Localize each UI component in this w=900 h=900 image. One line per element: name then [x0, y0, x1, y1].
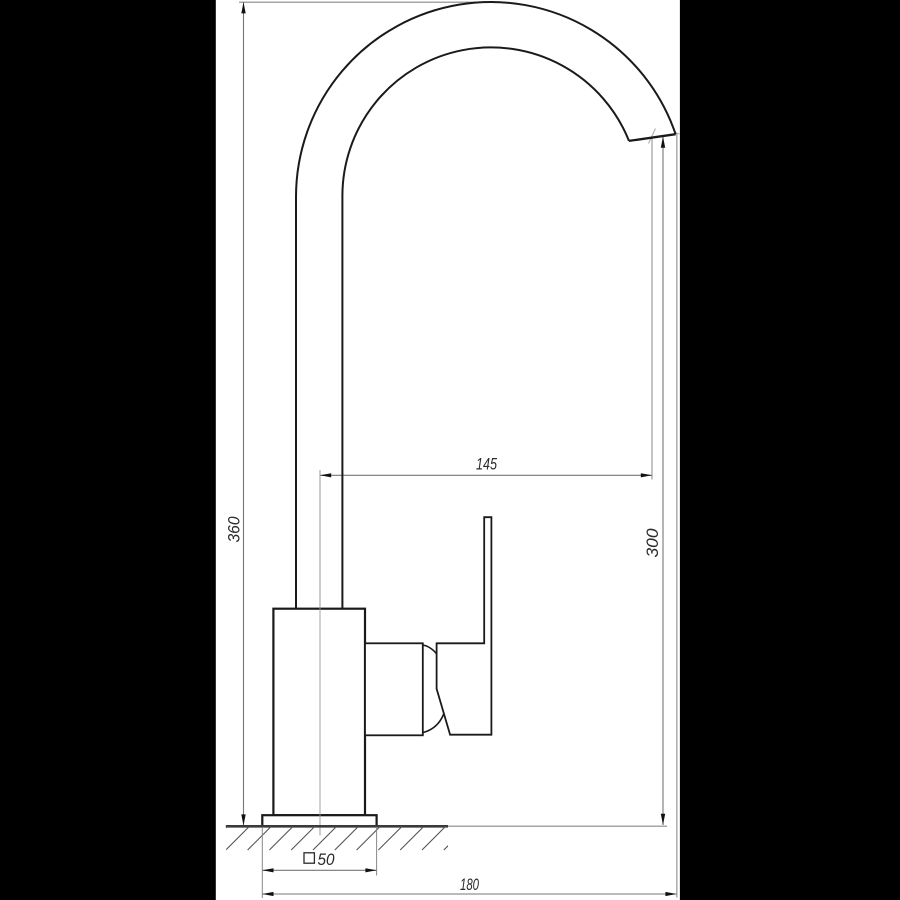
svg-text:360: 360	[225, 516, 244, 542]
svg-text:300: 300	[643, 528, 662, 558]
svg-text:180: 180	[460, 875, 479, 894]
svg-text:145: 145	[476, 455, 497, 474]
svg-text:50: 50	[318, 850, 335, 869]
